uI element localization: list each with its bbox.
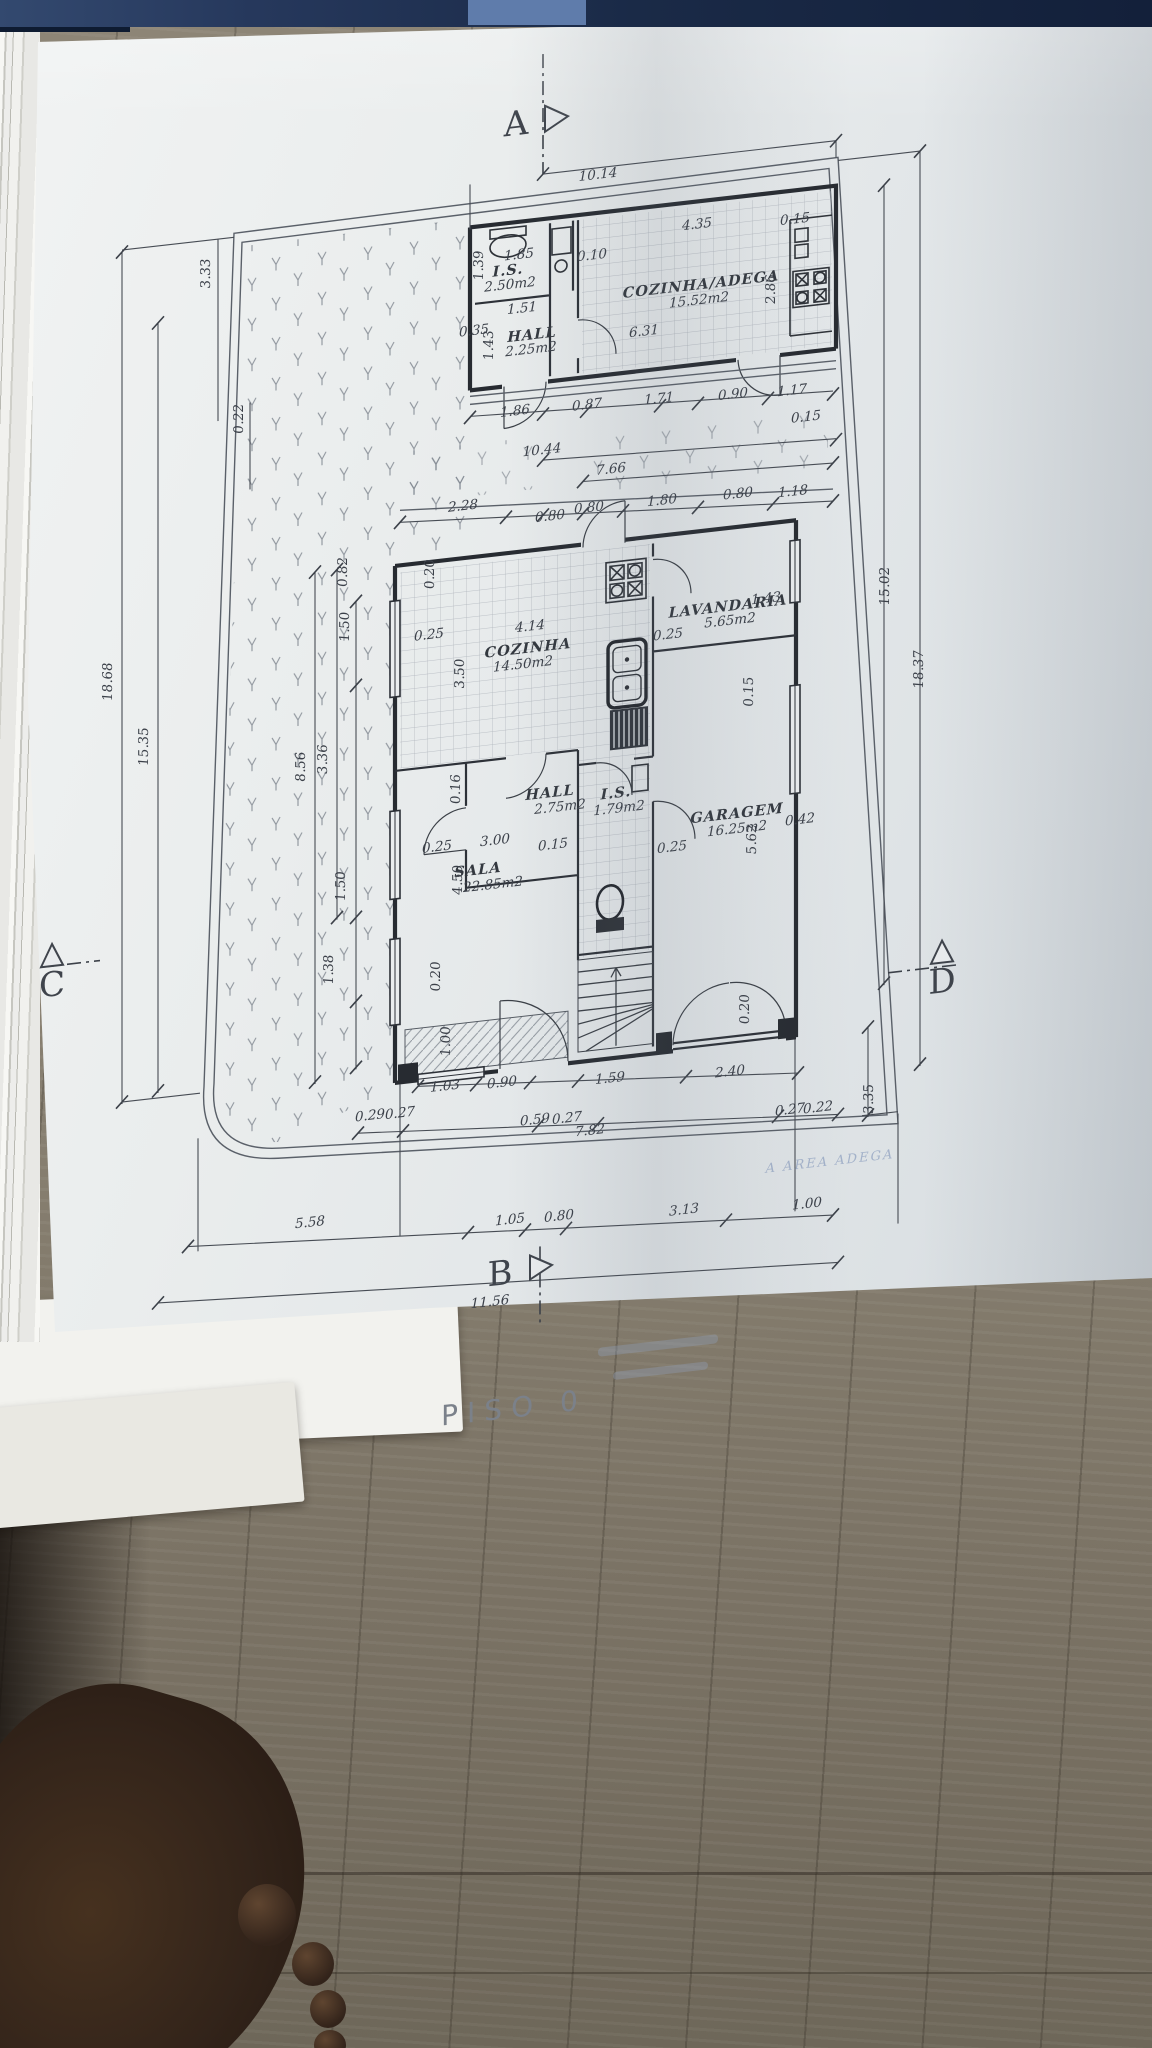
porch-pillar	[398, 1062, 418, 1082]
faint-stamp-bar	[598, 1334, 718, 1357]
dimension-label: 5.62	[744, 823, 760, 855]
dimension-label: 0.20	[737, 993, 753, 1025]
faint-stamp-bar	[613, 1361, 708, 1380]
dimension-label: 1.18	[778, 482, 808, 501]
dimension-label: 2.40	[714, 1062, 745, 1082]
dimension-label: 1.59	[595, 1069, 625, 1088]
dimension-label: 1.71	[644, 389, 674, 408]
dimension-label: 0.90	[718, 385, 748, 404]
dimension-label: 0.59	[520, 1110, 550, 1129]
dimension-label: 1.05	[495, 1210, 525, 1229]
dimension-label: 15.35	[136, 726, 152, 766]
dimension-label: 1.00	[792, 1194, 822, 1213]
section-marker-triangle-a	[545, 103, 568, 132]
toe	[310, 1990, 346, 2028]
floor-title: PISO 0	[441, 1383, 587, 1432]
dimension-label: 1.51	[507, 299, 537, 318]
dimension-label: 0.80	[535, 507, 565, 526]
dimension-label: 18.37	[911, 649, 927, 690]
entrance-porch-paving	[405, 1011, 568, 1076]
dimension-label: 3.33	[198, 258, 214, 290]
dimension-label: 3.35	[861, 1083, 877, 1115]
dimension-label: 7.82	[575, 1121, 605, 1140]
dimension-label: 0.25	[657, 838, 687, 857]
toe	[238, 1884, 296, 1946]
section-marker-triangle-b	[530, 1253, 552, 1280]
dimension-label: 0.27	[775, 1100, 805, 1119]
floor-plan: A10.141.851.39I.S.2.50m21.510.351.43HALL…	[39, 7, 958, 1479]
dimension-label: 0.87	[572, 395, 602, 414]
staircase	[578, 952, 653, 1053]
dimension-label: 0.42	[785, 810, 815, 829]
room-area-label: 2.50m2	[483, 274, 535, 296]
dimension-label: 0.25	[653, 625, 683, 644]
toe	[292, 1942, 334, 1986]
dimension-label: 1.39	[471, 249, 487, 281]
dimension-label: 1.50	[337, 610, 353, 642]
dimension-label: 15.02	[877, 566, 893, 606]
stamp-text: A AREA ADEGA	[765, 1147, 895, 1177]
door-arc	[653, 555, 691, 597]
dimension-label: 6.31	[629, 322, 659, 341]
dimension-label: 0.15	[780, 210, 810, 229]
boiler-upper	[555, 259, 567, 272]
dimension-label: 0.27	[385, 1104, 415, 1123]
dimension-label: 1.50	[333, 870, 349, 902]
dimension-label: 0.15	[791, 407, 821, 426]
section-marker-letter: B	[488, 1253, 513, 1296]
dimension-label: 0.80	[723, 484, 753, 503]
dimension-label: 0.25	[422, 837, 452, 856]
dimension-label: 0.22	[231, 403, 247, 435]
dimension-label: 1.38	[321, 953, 337, 985]
dimension-label: 11.56	[471, 1292, 510, 1312]
dimension-label: 0.82	[335, 556, 351, 588]
section-marker-letter: D	[928, 960, 955, 1003]
dimension-label: 3.00	[480, 831, 510, 850]
dimension-label: 3.13	[669, 1200, 699, 1219]
dimension-label: 0.15	[538, 835, 568, 854]
dimension-label: 1.17	[777, 381, 807, 400]
photo-of-floorplan-page: A10.141.851.39I.S.2.50m21.510.351.43HALL…	[0, 0, 1152, 2048]
dimension-label: 0.90	[487, 1073, 517, 1092]
dimension-label: 0.16	[448, 773, 464, 805]
dimension-label: 0.25	[414, 625, 444, 644]
dimension-label: 0.20	[422, 558, 438, 590]
dimension-label: 1.86	[500, 402, 530, 421]
blue-patch-top	[468, 0, 586, 25]
dimension-label: 0.20	[428, 960, 444, 992]
dimension-label: 18.68	[100, 661, 116, 702]
dimension-label: 0.22	[803, 1098, 833, 1117]
dimension-label: 5.58	[295, 1213, 325, 1232]
dimension-label: 0.80	[574, 498, 604, 517]
dishwasher	[610, 706, 648, 750]
dimension-label: 0.29	[355, 1106, 385, 1125]
dimension-label: 8.56	[293, 750, 309, 782]
dimension-label: 1.43	[751, 589, 781, 608]
door-arc	[653, 797, 695, 844]
garage-door	[656, 975, 794, 1053]
washbasin-upper	[552, 227, 571, 255]
dimension-label: 1.43	[481, 329, 497, 361]
dimension-label: 2.28	[447, 496, 478, 516]
dimension-label: 10.44	[523, 440, 562, 460]
dimension-label: 3.50	[452, 657, 468, 689]
dimension-label: 3.36	[315, 743, 331, 775]
dimension-label: 1.03	[430, 1077, 460, 1096]
section-marker-letter: C	[39, 964, 65, 1007]
dimension-label: 0.15	[741, 676, 757, 708]
dimension-label: 1.80	[647, 491, 677, 510]
dimension-label: 4.50	[450, 863, 466, 896]
section-marker-letter: A	[503, 103, 529, 146]
dimension-label: 10.14	[579, 165, 618, 185]
dimension-label: 1.00	[438, 1025, 454, 1057]
